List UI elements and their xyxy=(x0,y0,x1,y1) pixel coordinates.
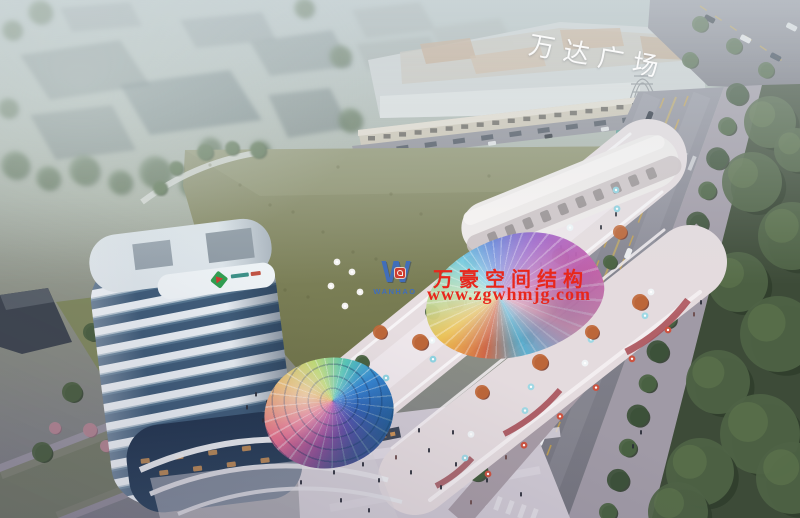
grass-speck xyxy=(487,174,490,177)
window xyxy=(601,107,608,112)
umbrella-top xyxy=(464,457,466,459)
grass-speck xyxy=(389,192,392,195)
umbrella-top xyxy=(432,358,434,360)
tree xyxy=(706,147,728,169)
person xyxy=(600,225,602,230)
window xyxy=(539,115,546,120)
grass-speck xyxy=(208,163,211,166)
tree xyxy=(69,155,99,185)
tree xyxy=(2,20,22,40)
tree xyxy=(619,439,637,457)
tree-highlight xyxy=(748,304,786,342)
person xyxy=(378,478,380,483)
tree xyxy=(83,423,97,437)
tree xyxy=(726,83,748,105)
tree xyxy=(692,16,708,32)
umbrella-top xyxy=(351,271,353,273)
umbrella-top xyxy=(559,415,561,417)
grass-speck xyxy=(351,250,354,253)
tree-highlight xyxy=(763,449,799,485)
umbrella-top xyxy=(359,291,361,293)
grass-speck xyxy=(306,295,309,298)
window xyxy=(430,128,437,133)
window xyxy=(384,134,391,139)
person xyxy=(632,444,634,449)
tree xyxy=(726,38,742,54)
person xyxy=(615,212,617,217)
umbrella-top xyxy=(616,208,618,210)
person xyxy=(246,405,248,410)
grass-speck xyxy=(238,183,241,186)
grass-speck xyxy=(291,210,294,213)
umbrella-top xyxy=(584,362,586,364)
person xyxy=(333,470,335,475)
tree xyxy=(475,385,489,399)
person xyxy=(470,500,472,505)
tree xyxy=(36,166,60,190)
umbrella-top xyxy=(523,444,525,446)
tree xyxy=(627,405,649,427)
umbrella-top xyxy=(530,386,532,388)
person xyxy=(693,312,695,317)
tree xyxy=(1,151,29,179)
tree xyxy=(639,374,657,392)
tree xyxy=(412,334,428,350)
tree xyxy=(225,141,239,155)
person xyxy=(520,492,522,497)
umbrella-top xyxy=(431,339,433,341)
umbrella-top xyxy=(650,291,652,293)
umbrella-top xyxy=(330,285,332,287)
rendering-scene: 万达广场 W WANHAO 万豪空间结构 www.zgwhmjg.com xyxy=(0,0,800,518)
grass-speck xyxy=(283,288,286,291)
tree xyxy=(607,469,629,491)
tree-highlight xyxy=(728,158,758,188)
tree xyxy=(758,62,774,78)
window xyxy=(523,117,530,122)
person xyxy=(368,508,370,513)
tree xyxy=(338,108,362,132)
watermark-logo-text: WANHAO xyxy=(372,287,418,296)
person xyxy=(640,430,642,435)
tree-highlight xyxy=(765,209,799,243)
watermark-logo-badge-icon xyxy=(394,267,406,279)
umbrella-top xyxy=(595,386,597,388)
tree-highlight xyxy=(778,132,800,154)
window xyxy=(554,113,561,118)
person xyxy=(395,455,397,460)
tree xyxy=(613,225,627,239)
umbrella-top xyxy=(644,315,646,317)
tree xyxy=(329,45,351,67)
tree xyxy=(532,354,548,370)
person xyxy=(428,448,430,453)
umbrella-top xyxy=(336,261,338,263)
tree xyxy=(169,161,183,175)
umbrella-top xyxy=(344,305,346,307)
tree xyxy=(585,325,599,339)
window xyxy=(461,124,468,128)
watermark-logo: W WANHAO xyxy=(372,258,418,296)
umbrella-top xyxy=(631,358,633,360)
window xyxy=(570,111,577,116)
watermark-url: www.zgwhmjg.com xyxy=(427,284,591,305)
tree xyxy=(632,294,648,310)
person xyxy=(452,430,454,435)
person xyxy=(300,480,302,485)
tree-highlight xyxy=(728,402,768,442)
person xyxy=(340,498,342,503)
tree xyxy=(49,422,61,434)
tree xyxy=(153,181,167,195)
person xyxy=(440,485,442,490)
tree xyxy=(603,255,617,269)
umbrella-top xyxy=(524,409,526,411)
tree xyxy=(62,382,82,402)
umbrella-top xyxy=(487,473,489,475)
person xyxy=(410,470,412,475)
person xyxy=(362,462,364,467)
window xyxy=(508,119,515,124)
person xyxy=(486,478,488,483)
grass-speck xyxy=(336,165,339,168)
umbrella-top xyxy=(385,377,387,379)
grass-speck xyxy=(268,203,271,206)
grass-speck xyxy=(419,212,422,215)
person xyxy=(418,428,420,433)
grass-speck xyxy=(321,230,324,233)
window xyxy=(492,120,499,125)
window xyxy=(368,136,375,141)
background-massing-blocks xyxy=(20,2,352,160)
tree xyxy=(647,340,669,362)
umbrella-top xyxy=(667,329,669,331)
tree-highlight xyxy=(692,356,724,388)
tree xyxy=(32,442,52,462)
umbrella-top xyxy=(615,189,617,191)
person xyxy=(255,392,257,397)
tree-highlight xyxy=(673,445,707,479)
tree-highlight xyxy=(749,101,775,127)
window xyxy=(415,130,422,135)
window xyxy=(446,126,453,131)
person xyxy=(455,462,457,467)
tree xyxy=(28,0,52,24)
window xyxy=(616,105,623,110)
tree xyxy=(197,144,213,160)
window xyxy=(585,109,592,114)
tree xyxy=(250,142,266,158)
tree xyxy=(718,117,736,135)
window xyxy=(399,132,406,137)
tree xyxy=(108,170,132,194)
person xyxy=(700,300,702,305)
tree xyxy=(698,181,716,199)
umbrella-top xyxy=(470,433,472,435)
tree xyxy=(373,325,387,339)
window xyxy=(477,122,484,127)
tree-highlight xyxy=(654,488,684,518)
person xyxy=(505,455,507,460)
umbrella-top xyxy=(569,226,571,228)
